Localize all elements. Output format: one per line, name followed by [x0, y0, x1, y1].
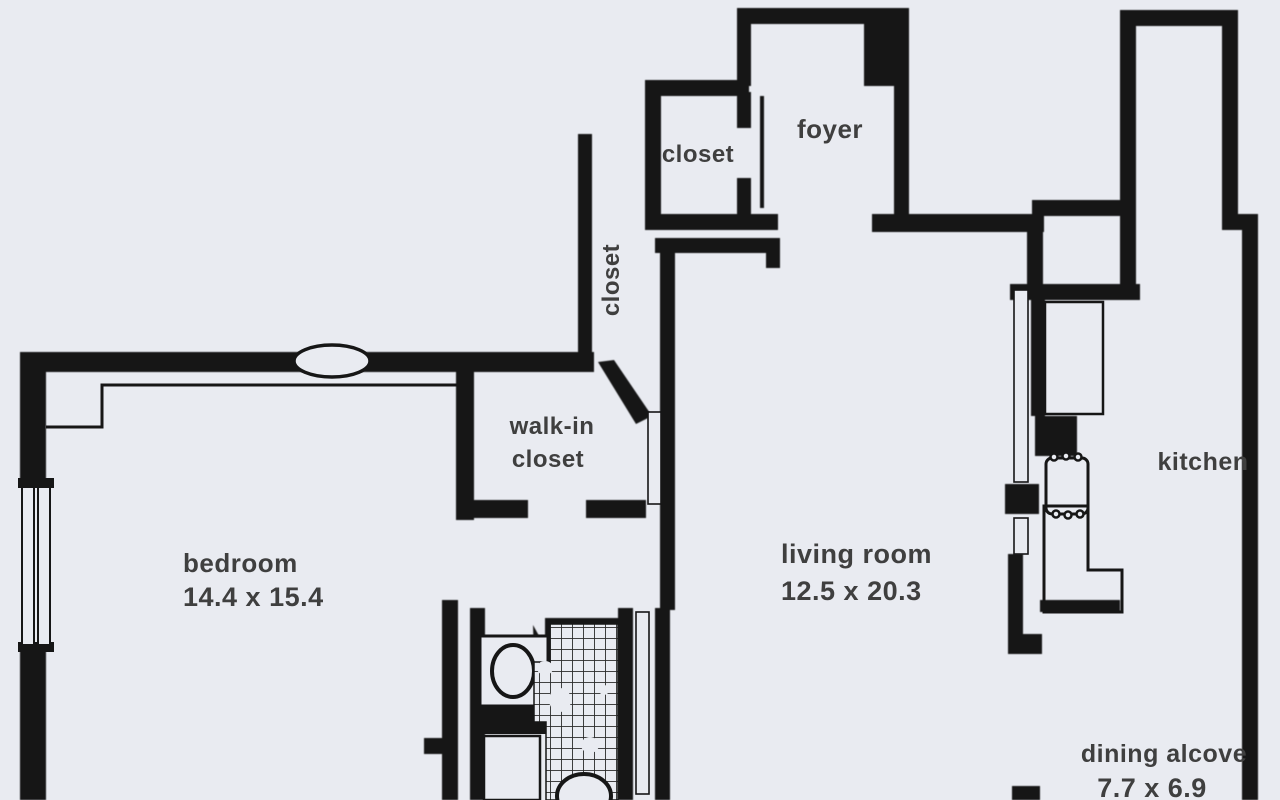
wall-segment [655, 608, 670, 800]
wall-segment [1008, 554, 1023, 612]
bedroom-window [18, 478, 54, 652]
wall-segment [737, 8, 751, 86]
sink-faucet [1063, 453, 1070, 460]
wall-segment [578, 134, 592, 352]
stove-fixture [1035, 416, 1077, 456]
wall-segment [894, 8, 909, 216]
label-walkin-line1: walk-in [509, 413, 595, 440]
kitchen-l-counter [1044, 506, 1122, 612]
wall-segment [872, 214, 1044, 232]
label-dining-alcove: dining alcove [1081, 740, 1247, 768]
wall-segment [737, 92, 751, 128]
vanity-sink-basin [492, 645, 534, 697]
door-jamb [424, 738, 444, 754]
floor-plan-drawing: closet foyer closet walk-in closet bedro… [0, 0, 1280, 800]
toilet-fixture [557, 774, 611, 800]
bathroom [478, 624, 618, 800]
wall-segment [1027, 214, 1043, 288]
label-dining-alcove-dimensions: 7.7 x 6.9 [1097, 773, 1207, 800]
sink-faucet [1065, 512, 1072, 519]
wall-segment [645, 214, 778, 230]
window-pane [22, 487, 34, 645]
wall-segment [1032, 200, 1126, 216]
kitchen-counter-edge [1040, 600, 1120, 612]
label-bedroom-dimensions: 14.4 x 15.4 [183, 582, 324, 612]
label-living-room: living room [781, 539, 932, 569]
kitchen-counter-edge [1031, 300, 1045, 416]
tile-wear-mark [537, 661, 553, 675]
label-foyer: foyer [797, 114, 863, 144]
sink-faucet [1077, 511, 1084, 518]
kitchen-fixtures [1044, 302, 1122, 612]
window-pane [38, 487, 50, 645]
shower-fixture [484, 736, 540, 800]
door-swing [598, 360, 652, 424]
sink-faucet [1051, 454, 1058, 461]
wall-inner-face [46, 385, 470, 427]
wall-segment [737, 8, 909, 24]
wall-segment [618, 608, 633, 800]
wall-segment [586, 500, 646, 518]
wall-segment [737, 178, 751, 230]
wall-segment [645, 80, 661, 230]
label-closet-vertical: closet [598, 244, 625, 316]
tile-wear-mark [599, 685, 609, 695]
wall-segment [1120, 10, 1238, 26]
wall-segment [1242, 214, 1258, 800]
door-leaf-kitchen-2 [1014, 518, 1028, 554]
door-leaf-walkin [648, 412, 661, 504]
wall-segment [442, 600, 458, 800]
tile-wear-mark [581, 737, 599, 753]
kitchen-counter [1045, 302, 1103, 414]
label-living-room-dimensions: 12.5 x 20.3 [781, 576, 922, 606]
label-closet-top: closet [662, 141, 734, 168]
floor-plan-page: closet foyer closet walk-in closet bedro… [0, 0, 1280, 800]
door-leaf-line [760, 96, 764, 208]
wall-segment [456, 372, 474, 520]
wall-segment [655, 238, 780, 253]
wall-segment [20, 650, 46, 800]
wall-segment [766, 238, 780, 268]
door-leaf-bathroom [636, 612, 649, 794]
wall-segment [20, 352, 46, 485]
sink-faucet [1053, 511, 1060, 518]
sink-faucet [1075, 454, 1082, 461]
wall-segment [470, 500, 528, 518]
wall-ac-sleeve [294, 345, 370, 377]
tile-wear-mark [549, 688, 571, 712]
label-walkin-line2: closet [512, 446, 584, 473]
wall-segment [1222, 10, 1238, 220]
wall-segment [660, 252, 675, 610]
wall-segment [1008, 634, 1042, 654]
wall-segment [1120, 10, 1136, 300]
wall-segment [1012, 786, 1040, 800]
door-leaf-kitchen [1014, 290, 1028, 482]
label-bedroom: bedroom [183, 548, 298, 578]
label-kitchen: kitchen [1157, 448, 1248, 476]
wall-segment [1005, 484, 1039, 514]
